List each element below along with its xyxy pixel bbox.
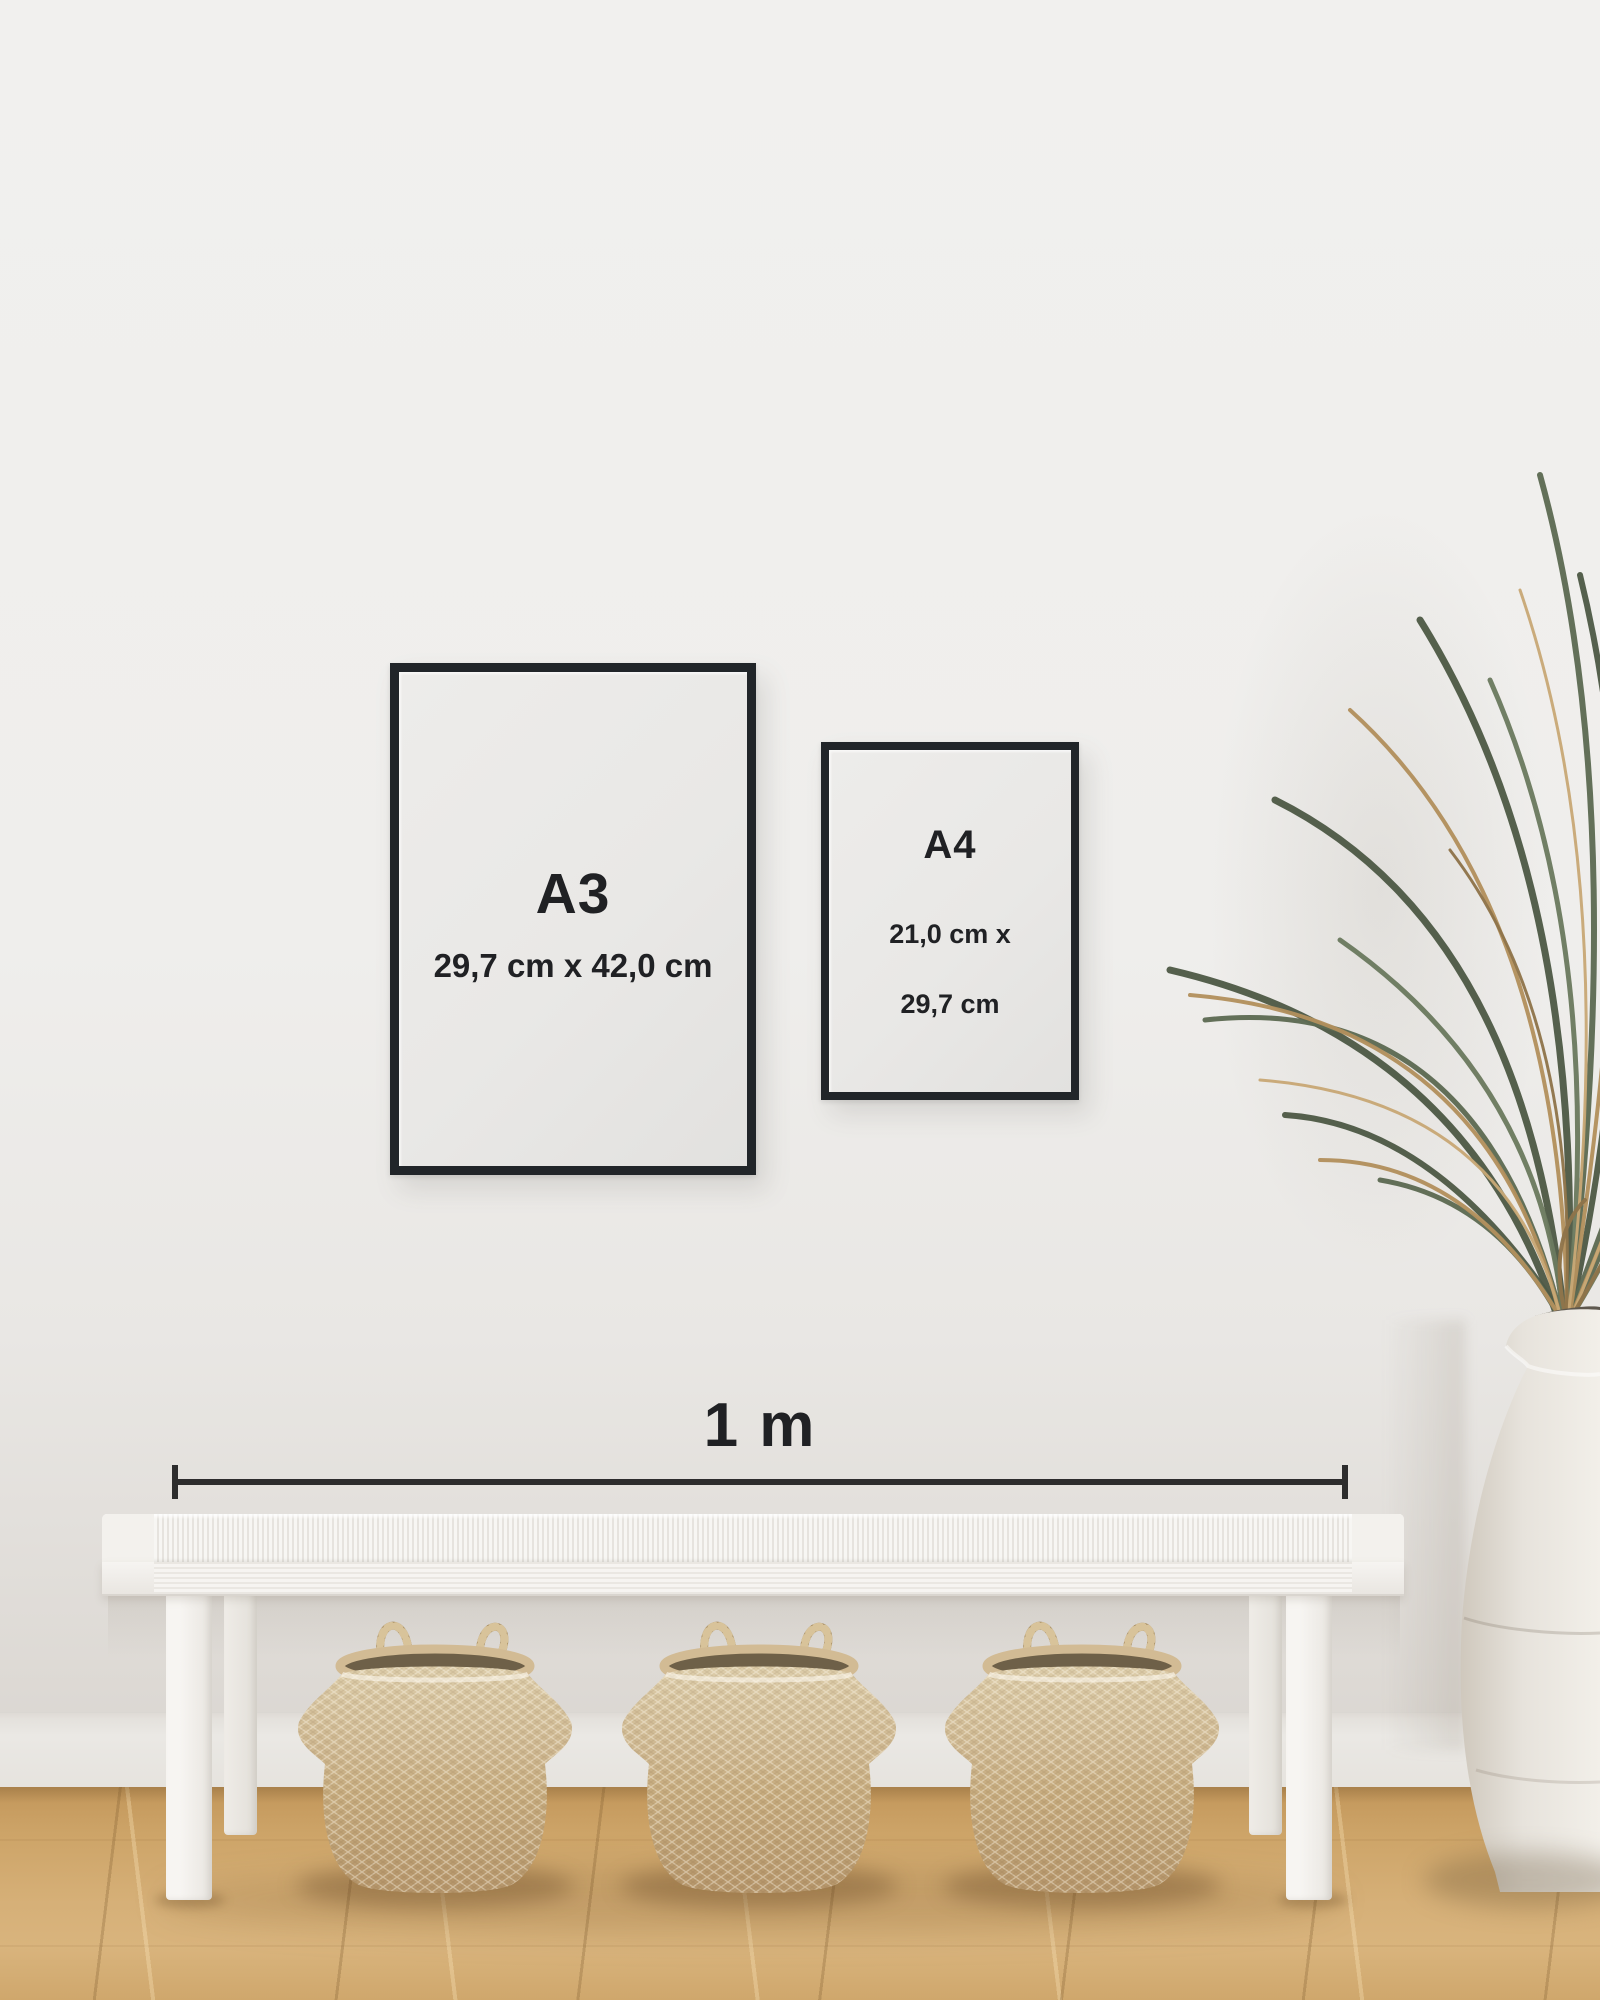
bench-leg-front-left [166, 1592, 212, 1900]
bench-leg-rear-right [1249, 1592, 1282, 1835]
frame-a4-text: A4 21,0 cm x 29,7 cm [889, 825, 1011, 1057]
scale-bar: 1 m [172, 1395, 1348, 1497]
seagrass-basket-3 [932, 1602, 1232, 1902]
frame-a4-label: A4 [923, 825, 976, 865]
frame-a3-text: A3 29,7 cm x 42,0 cm [434, 866, 713, 985]
bench-leg-rear-left [224, 1592, 257, 1835]
bench-leg-front-right [1286, 1592, 1332, 1900]
seagrass-basket-1 [285, 1602, 585, 1902]
frame-a3: A3 29,7 cm x 42,0 cm [390, 663, 756, 1175]
scale-line [172, 1479, 1348, 1485]
scale-tick-left [172, 1465, 178, 1499]
frame-a4-dimensions-line2: 29,7 cm [889, 987, 1011, 1022]
frame-a4-dimensions-line1: 21,0 cm x [889, 917, 1011, 952]
ceramic-vase [1440, 1300, 1600, 1900]
scale-tick-right [1342, 1465, 1348, 1499]
seagrass-basket-2 [609, 1602, 909, 1902]
scale-label: 1 m [172, 1395, 1348, 1457]
bench-front-rail [102, 1562, 1404, 1596]
palm-plant [1020, 380, 1600, 1380]
frame-a3-label: A3 [536, 866, 611, 923]
frame-size-guide-scene: 1 m A3 29,7 cm x 42,0 cm A4 21,0 cm x 29… [0, 0, 1600, 2000]
frame-a3-dimensions: 29,7 cm x 42,0 cm [434, 947, 713, 985]
frame-a4-dimensions: 21,0 cm x 29,7 cm [889, 882, 1011, 1057]
bench-woven-top [102, 1514, 1404, 1562]
